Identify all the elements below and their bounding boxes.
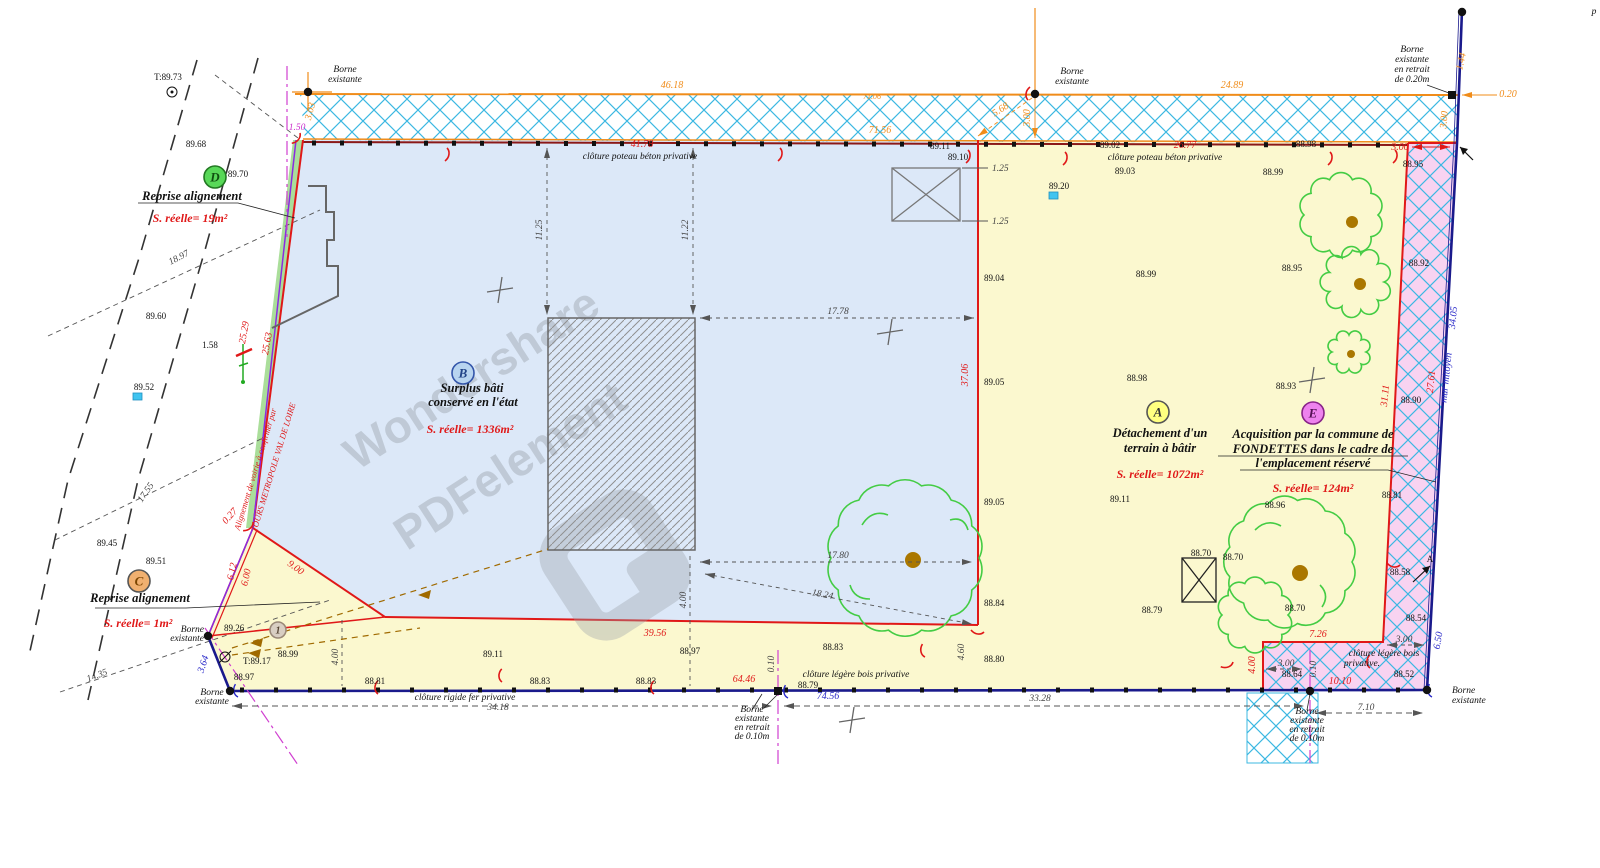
elevation: 89.04 [984, 273, 1005, 283]
elevation: 88.99 [1136, 269, 1157, 279]
borne-label: de 0.10m [1290, 734, 1325, 744]
borne-marker [1306, 687, 1314, 695]
dim-gray: 11.25 [535, 219, 545, 240]
borne-label: Borne [1452, 686, 1475, 696]
parcel-d-title: Reprise alignement [141, 189, 242, 203]
fence-label: privative. [1343, 659, 1380, 669]
elevation: 89.70 [228, 169, 249, 179]
borne-label: en retrait [1394, 65, 1430, 75]
elevation: 89.02 [1100, 140, 1120, 150]
dim-gray: 34.18 [486, 703, 509, 713]
survey-point-circle [167, 87, 177, 97]
elevation: 88.54 [1406, 613, 1427, 623]
parcel-marker-letter-D: D [209, 170, 220, 185]
elevation: 88.83 [636, 676, 657, 686]
corner-mark: p [1591, 7, 1597, 17]
elevation: 89.26 [224, 623, 245, 633]
elevation: 88.98 [1296, 139, 1317, 149]
borne-marker [204, 632, 212, 640]
dim-red: 37.06 [960, 364, 971, 388]
parcel-marker-letter-1: 1 [276, 626, 281, 637]
elevation: 88.99 [278, 649, 299, 659]
borne-marker [774, 687, 782, 695]
borne-label: existante [1395, 55, 1429, 65]
dim-orange: 71.06 [863, 92, 881, 101]
elevation: 1.58 [202, 340, 218, 350]
borne-label: existante [170, 634, 204, 644]
dim-blue: 74.56 [817, 691, 840, 702]
elevation: 88.79 [798, 680, 819, 690]
dim-gray: 4.00 [331, 648, 341, 665]
dim-gray: 1.25 [992, 164, 1009, 174]
elevation: 89.05 [984, 377, 1005, 387]
elevation: 88.95 [1282, 263, 1303, 273]
elevation: 89.11 [930, 141, 950, 151]
parcel-c-title: Reprise alignement [89, 591, 190, 605]
elevation: 88.70 [1223, 552, 1244, 562]
borne-marker [226, 687, 234, 695]
road-edge-dashed [28, 60, 197, 660]
borne-marker [1448, 91, 1456, 99]
dim-gray: 1.25 [992, 217, 1009, 227]
dim-magenta: 1.50 [289, 123, 306, 133]
parcel-marker-letter-E: E [1308, 406, 1318, 421]
dim-red: 3.00 [1390, 142, 1409, 153]
survey-plan-drawing: Wondershare PDFelement [0, 0, 1600, 868]
construction-dashed [215, 75, 298, 138]
dim-red: 7.26 [1309, 629, 1327, 640]
elevation: 88.81 [365, 676, 385, 686]
elevation: 88.52 [1394, 669, 1414, 679]
dim-red: 25.29 [237, 321, 252, 345]
elevation: 89.60 [146, 311, 167, 321]
dim-red: 27.61 [1425, 370, 1438, 394]
dim-gray: 18.97 [167, 248, 192, 267]
borne-label: de 0.20m [1395, 75, 1430, 85]
parcel-b-title: conservé en l'état [428, 395, 518, 409]
elevation: 89.45 [97, 538, 118, 548]
elevation: 88.64 [1282, 669, 1303, 679]
fence-label: clôture légère bois [1349, 649, 1420, 659]
cyan-point-marker [1049, 192, 1058, 199]
dim-gray: 0.10 [1309, 660, 1319, 677]
point-elevation: T:89.17 [243, 656, 271, 666]
borne-label: Borne [333, 65, 356, 75]
elevation: 88.70 [1285, 603, 1306, 613]
green-alignment-symbol [236, 344, 252, 384]
fence-label: clôture poteau béton privative [583, 152, 697, 162]
leader-borne [1427, 85, 1449, 93]
borne-label: existante [1055, 77, 1089, 87]
borne-label: existante [1452, 696, 1486, 706]
parcel-a-title: Détachement d'un [1112, 426, 1208, 440]
dim-red: 41.78 [631, 139, 654, 150]
parcel-marker-letter-B: B [458, 366, 468, 381]
borne-marker [1031, 90, 1039, 98]
parcel-e-title: l'emplacement réservé [1256, 456, 1371, 470]
elevation: 89.03 [1115, 166, 1136, 176]
point-elevation: T:89.73 [154, 72, 182, 82]
elevation: 89.10 [948, 152, 969, 162]
dim-orange: 0.20 [1499, 89, 1517, 100]
dim-orange: 3.00 [1022, 109, 1033, 128]
borne-label: Borne [1060, 67, 1083, 77]
fence-label: clôture poteau béton privative [1108, 153, 1222, 163]
section-mark: A [1427, 554, 1434, 564]
survey-plan-page: Wondershare PDFelement [0, 0, 1600, 868]
dim-orange: 24.89 [1221, 80, 1244, 91]
parcel-e-area: S. réelle= 124m² [1273, 481, 1354, 495]
parcel-e-title: FONDETTES dans le cadre de [1232, 442, 1394, 456]
borne-marker [1423, 686, 1431, 694]
dim-gray: 17.55 [136, 481, 157, 504]
elevation: 88.84 [984, 598, 1005, 608]
dim-gray: 4.00 [679, 591, 689, 608]
parcel-b-area: S. réelle= 1336m² [427, 422, 514, 436]
dim-gray: 17.78 [827, 307, 849, 317]
parcel-marker-letter-A: A [1153, 405, 1163, 420]
elevation: 88.97 [234, 672, 255, 682]
elevation: 89.51 [146, 556, 166, 566]
dim-blue: 3.64 [195, 654, 211, 675]
parcel-e-title: Acquisition par la commune de [1231, 427, 1394, 441]
elevation: 89.52 [134, 382, 154, 392]
dim-red: 10.10 [1329, 676, 1352, 687]
dim-blue: 34.05 [1447, 306, 1460, 331]
dim-red: 4.00 [1247, 656, 1258, 674]
parcel-b-title: Surplus bâti [441, 381, 504, 395]
dim-gray: 14.35 [86, 668, 110, 685]
elevation: 88.96 [1265, 500, 1286, 510]
dim-gray: 17.80 [827, 551, 849, 561]
elevation: 88.93 [1276, 381, 1297, 391]
borne-marker [1458, 8, 1466, 16]
elevation: 88.83 [823, 642, 844, 652]
dim-gray: 33.28 [1028, 694, 1051, 704]
elevation: 88.99 [1263, 167, 1284, 177]
elevation: 88.95 [1403, 159, 1424, 169]
dim-red: 64.46 [733, 674, 756, 685]
parcel-marker-letter-C: C [135, 574, 144, 589]
borne-label: Borne [1400, 45, 1423, 55]
elevation: 88.92 [1409, 258, 1429, 268]
elevation: 88.80 [984, 654, 1005, 664]
cross-mark [839, 707, 865, 733]
dim-gray: 11.22 [681, 219, 691, 240]
fence-label: clôture rigide fer privative [415, 692, 516, 703]
dim-orange: 3.00 [1438, 111, 1451, 130]
elevation: 89.11 [483, 649, 503, 659]
dim-gray: 4.60 [957, 643, 967, 660]
building-hatched [548, 318, 695, 550]
dim-orange: 71.56 [869, 125, 892, 136]
dim-blue: 6.50 [1432, 631, 1446, 650]
elevation: 88.58 [1390, 567, 1411, 577]
parcel-a-title: terrain à bâtir [1124, 441, 1196, 455]
fence-label: clôture légère bois privative [803, 670, 910, 680]
elevation: 88.97 [680, 646, 701, 656]
dim-orange: 1.44 [1454, 52, 1468, 71]
elevation: 88.70 [1191, 548, 1212, 558]
elevation: 88.79 [1142, 605, 1163, 615]
elevation: 89.68 [186, 139, 207, 149]
borne-marker [304, 88, 312, 96]
borne-label: existante [195, 697, 229, 707]
dim-gray: 0.10 [767, 655, 777, 672]
dim-gray: 3.00 [1277, 659, 1295, 669]
borne-label: existante [328, 75, 362, 85]
dim-gray: 7.10 [1358, 703, 1375, 713]
cyan-point-marker [133, 393, 142, 400]
parcel-c-area: S. réelle= 1m² [104, 616, 173, 630]
dim-red: 26.77 [1174, 140, 1198, 151]
dim-red: 39.56 [643, 628, 667, 639]
elevation: 89.11 [1110, 494, 1130, 504]
dim-orange: 46.18 [661, 80, 684, 91]
elevation: 89.05 [984, 497, 1005, 507]
borne-label: de 0.10m [735, 732, 770, 742]
dim-gray: 3.00 [1395, 635, 1413, 645]
elevation: 88.90 [1401, 395, 1422, 405]
elevation: 88.98 [1127, 373, 1148, 383]
elevation: 88.83 [530, 676, 551, 686]
elevation: 89.20 [1049, 181, 1070, 191]
elevation: 88.81 [1382, 490, 1402, 500]
parcel-d-area: S. réelle= 19m² [153, 211, 228, 225]
parcel-a-area: S. réelle= 1072m² [1117, 467, 1204, 481]
